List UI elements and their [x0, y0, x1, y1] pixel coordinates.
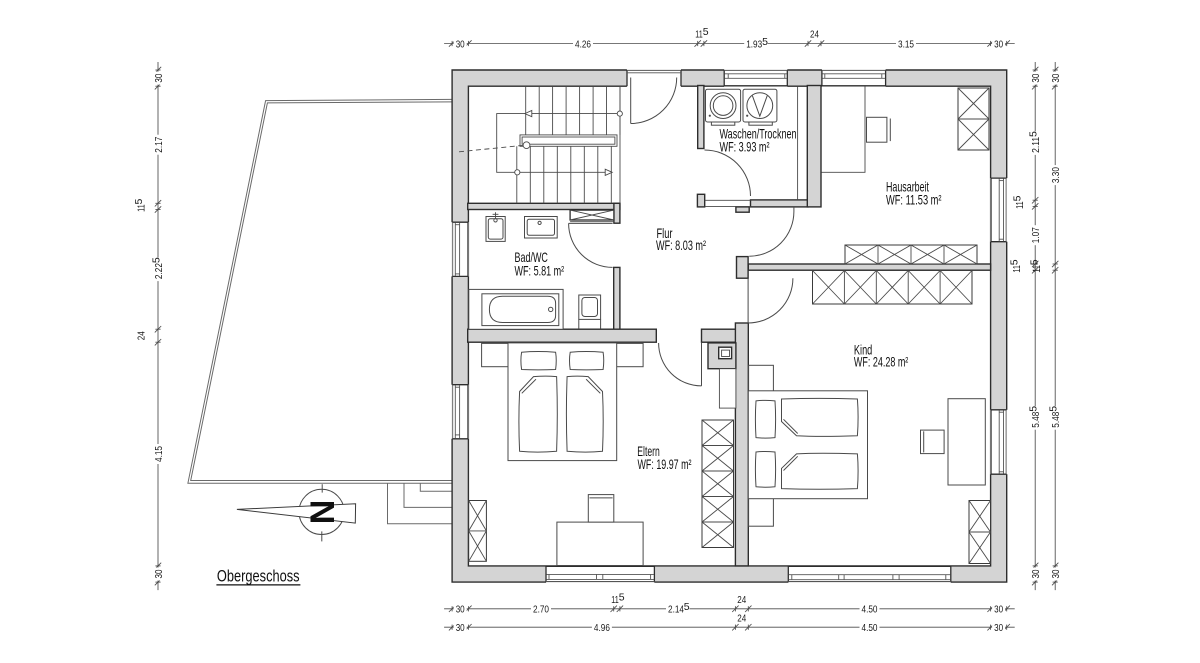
svg-text:WF: 19.97 m²: WF: 19.97 m²	[638, 456, 692, 472]
svg-text:30: 30	[994, 622, 1003, 634]
svg-text:Obergeschoss: Obergeschoss	[217, 566, 300, 585]
svg-text:4.15: 4.15	[153, 446, 165, 462]
svg-text:2.11: 2.11	[1030, 137, 1042, 153]
svg-text:30: 30	[1030, 569, 1042, 578]
svg-text:5: 5	[1029, 259, 1041, 265]
svg-text:30: 30	[456, 622, 465, 634]
svg-text:5: 5	[1028, 406, 1040, 412]
svg-text:24: 24	[737, 612, 746, 624]
svg-text:5: 5	[1009, 259, 1021, 265]
svg-text:30: 30	[1050, 73, 1062, 82]
svg-text:30: 30	[1050, 569, 1062, 578]
svg-text:24: 24	[737, 594, 746, 606]
svg-text:3.30: 3.30	[1050, 167, 1062, 183]
svg-text:5: 5	[703, 26, 709, 38]
svg-text:2.17: 2.17	[153, 137, 165, 153]
svg-text:30: 30	[456, 604, 465, 616]
svg-text:1.93: 1.93	[746, 38, 762, 50]
svg-text:2.22: 2.22	[153, 263, 165, 279]
svg-text:30: 30	[153, 569, 165, 578]
svg-text:5: 5	[1012, 195, 1024, 201]
svg-text:24: 24	[136, 331, 148, 340]
svg-text:30: 30	[994, 604, 1003, 616]
svg-text:5: 5	[1028, 131, 1040, 137]
svg-text:4.50: 4.50	[862, 622, 878, 634]
svg-text:WF: 8.03 m²: WF: 8.03 m²	[656, 237, 706, 253]
svg-text:5.48: 5.48	[1050, 412, 1062, 428]
svg-text:WF: 3.93 m²: WF: 3.93 m²	[720, 139, 770, 155]
svg-text:5: 5	[150, 257, 162, 263]
svg-text:5.48: 5.48	[1030, 412, 1042, 428]
svg-text:5: 5	[619, 591, 625, 603]
svg-text:5: 5	[1048, 406, 1060, 412]
svg-text:3.15: 3.15	[898, 38, 914, 50]
svg-text:24: 24	[810, 29, 819, 41]
svg-text:30: 30	[994, 38, 1003, 50]
svg-text:30: 30	[456, 38, 465, 50]
svg-text:5: 5	[684, 601, 690, 613]
svg-text:30: 30	[153, 73, 165, 82]
svg-text:2.14: 2.14	[668, 604, 684, 616]
svg-text:4.50: 4.50	[862, 604, 878, 616]
svg-text:5: 5	[133, 199, 145, 205]
svg-text:4.96: 4.96	[594, 622, 610, 634]
svg-text:WF: 24.28 m²: WF: 24.28 m²	[854, 354, 909, 370]
svg-text:2.70: 2.70	[533, 604, 549, 616]
svg-text:4.26: 4.26	[575, 38, 591, 50]
svg-text:5: 5	[762, 36, 768, 48]
svg-text:1.07: 1.07	[1030, 227, 1042, 243]
svg-text:30: 30	[1030, 73, 1042, 82]
svg-text:N: N	[303, 500, 341, 525]
svg-text:WF: 5.81 m²: WF: 5.81 m²	[515, 263, 565, 279]
svg-text:WF: 11.53 m²: WF: 11.53 m²	[886, 192, 942, 208]
